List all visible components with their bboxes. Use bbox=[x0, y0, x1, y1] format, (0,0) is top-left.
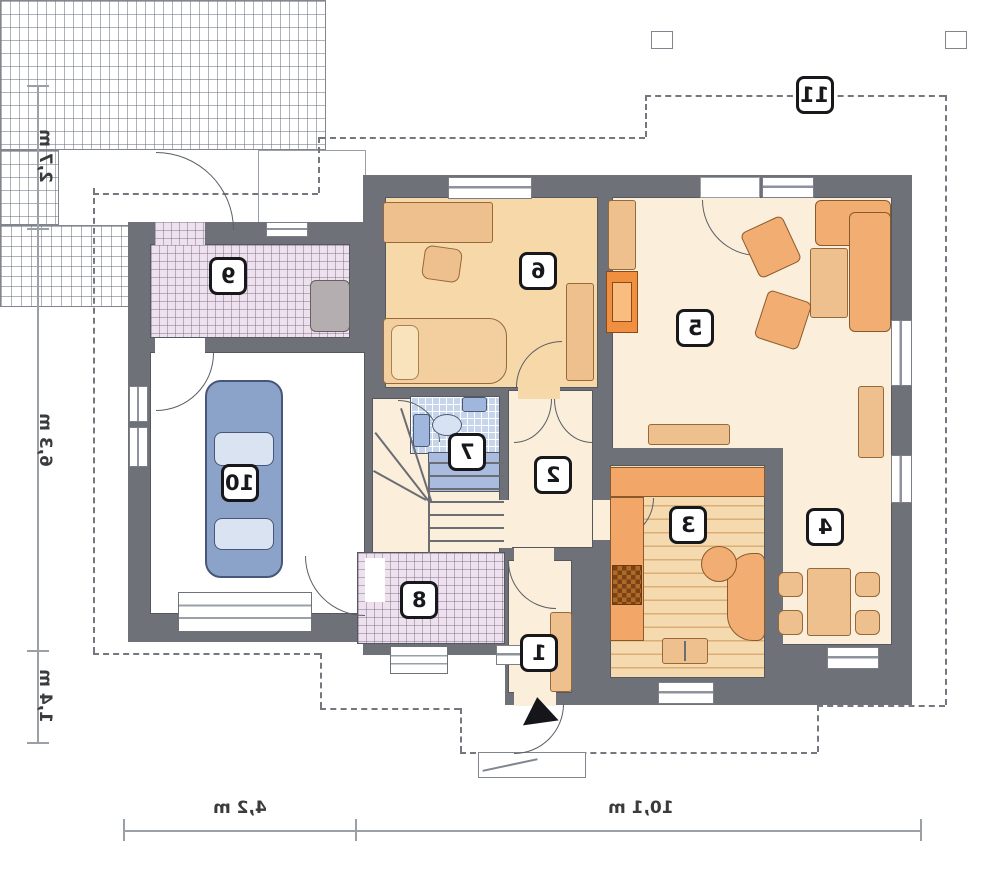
dim-label-bottom-1: 4,2 m bbox=[213, 798, 267, 818]
room-label-8: 8 bbox=[400, 581, 438, 619]
window-kitchen-south bbox=[658, 682, 714, 704]
roof-outline-top-right bbox=[645, 95, 945, 97]
dim-line-bottom bbox=[123, 830, 920, 832]
room-label-6: 6 bbox=[519, 252, 557, 290]
dim-label-left-1: 2,7 m bbox=[35, 129, 55, 183]
dining-chair-4 bbox=[855, 610, 880, 635]
room-label-1: 1 bbox=[520, 634, 558, 672]
coffee-table bbox=[810, 248, 848, 318]
bathroom-shelf bbox=[462, 397, 487, 412]
kitchen-stool-leg bbox=[684, 641, 686, 661]
dining-chair-3 bbox=[778, 610, 803, 635]
dim-tick-bottom-2 bbox=[355, 819, 357, 841]
stairs-tread-3 bbox=[430, 488, 504, 490]
boiler bbox=[310, 280, 350, 332]
terrace-post-left bbox=[651, 31, 673, 49]
door-opening-room9-garage bbox=[155, 338, 205, 353]
terrace-post-right bbox=[945, 31, 967, 49]
room-number-9: 9 bbox=[221, 264, 236, 288]
roof-outline-top-left-step bbox=[318, 137, 320, 193]
cabinet-living-wall bbox=[608, 200, 636, 270]
fireplace-inner bbox=[612, 282, 632, 322]
dim-tick-left-1 bbox=[27, 85, 49, 87]
room-number-6: 6 bbox=[531, 259, 546, 283]
entry-arrow bbox=[519, 695, 558, 726]
roof-outline-step1 bbox=[320, 653, 322, 708]
room-number-4: 4 bbox=[818, 515, 833, 539]
window-room9-north bbox=[266, 222, 308, 237]
room-number-11: 11 bbox=[800, 83, 829, 107]
window-living-north bbox=[762, 177, 814, 198]
window-dining-south bbox=[827, 647, 879, 669]
room-number-1: 1 bbox=[532, 641, 547, 665]
room-number-7: 7 bbox=[460, 440, 475, 464]
terrace-11-floor bbox=[0, 0, 326, 150]
stairs-tread-6 bbox=[430, 527, 504, 529]
terrace-8-steps bbox=[390, 646, 448, 674]
door-opening-terrace11 bbox=[700, 177, 760, 198]
window-garage-west-upper bbox=[129, 386, 148, 422]
room-number-3: 3 bbox=[681, 513, 696, 537]
porch-tiles bbox=[0, 225, 140, 307]
stairs-tread-5 bbox=[430, 514, 504, 516]
room-label-10: 10 bbox=[221, 464, 259, 502]
door-opening-hall-vestibule bbox=[514, 548, 554, 561]
roof-outline-step2 bbox=[320, 708, 460, 710]
stairs-tread-4 bbox=[430, 501, 504, 503]
kitchen-counter-top bbox=[610, 467, 765, 497]
dim-tick-bottom-1 bbox=[123, 819, 125, 841]
room-label-9: 9 bbox=[209, 257, 247, 295]
roof-outline-right bbox=[945, 95, 947, 705]
room-number-8: 8 bbox=[412, 588, 427, 612]
car-rear-window bbox=[214, 518, 274, 550]
roof-outline-terrace-left bbox=[645, 95, 647, 137]
kitchen-sink bbox=[612, 565, 642, 605]
sideboard-east-wall bbox=[858, 386, 884, 458]
window-living-east-lower bbox=[891, 455, 912, 503]
window-room6-north bbox=[448, 177, 532, 199]
corner-sofa-side bbox=[849, 212, 891, 332]
room-label-4: 4 bbox=[806, 508, 844, 546]
desk-chair bbox=[421, 245, 463, 284]
roof-outline-top bbox=[320, 137, 645, 139]
stairs-tread-7 bbox=[430, 540, 504, 542]
door-arc-porch-room9 bbox=[156, 152, 234, 230]
wardrobe-room6 bbox=[566, 283, 594, 381]
door-opening-hall-kitchen bbox=[593, 500, 611, 540]
bed-pillow bbox=[391, 325, 419, 380]
dining-chair-1 bbox=[778, 572, 803, 597]
dim-label-left-2: 6,3 m bbox=[35, 413, 55, 467]
door-opening-room6-hall bbox=[518, 386, 560, 399]
car-windshield bbox=[214, 432, 274, 466]
roof-outline-bottom-left bbox=[93, 653, 320, 655]
window-garage-west-lower bbox=[129, 427, 148, 467]
dim-label-bottom-2: 10,1 m bbox=[608, 798, 674, 818]
garage-door bbox=[178, 592, 312, 632]
room-number-10: 10 bbox=[225, 471, 254, 495]
room-label-5: 5 bbox=[676, 309, 714, 347]
floor-plan: 1 2 3 4 5 6 7 8 9 10 11 2,7 m 6,3 m 1,4 … bbox=[0, 0, 1000, 870]
dim-tick-bottom-3 bbox=[920, 819, 922, 841]
sideboard-above-kitchen bbox=[648, 424, 730, 445]
dim-label-left-3: 1,4 m bbox=[35, 669, 55, 723]
dim-tick-left-2 bbox=[27, 228, 49, 230]
desk bbox=[383, 202, 493, 243]
dining-table bbox=[807, 568, 851, 636]
roof-outline-bottom-right bbox=[817, 705, 945, 707]
kitchen-dining-wall bbox=[765, 448, 783, 678]
kitchen-table-round bbox=[701, 546, 737, 582]
roof-outline-step3 bbox=[460, 708, 462, 752]
stairs-tread-2 bbox=[430, 475, 504, 477]
door-opening-garage-terrace bbox=[365, 558, 385, 602]
porch-landing bbox=[258, 150, 366, 232]
entry-step bbox=[478, 752, 586, 778]
dining-chair-2 bbox=[855, 572, 880, 597]
room-number-2: 2 bbox=[546, 463, 561, 487]
roof-outline-left bbox=[93, 188, 95, 653]
bathroom-toilet bbox=[413, 414, 430, 447]
dim-tick-left-4 bbox=[27, 742, 49, 744]
dim-tick-left-3 bbox=[27, 650, 49, 652]
room-label-3: 3 bbox=[669, 506, 707, 544]
window-living-east-upper bbox=[891, 320, 912, 386]
roof-outline-step4 bbox=[817, 705, 819, 752]
room-label-2: 2 bbox=[534, 456, 572, 494]
room-label-7: 7 bbox=[448, 433, 486, 471]
room-label-11: 11 bbox=[796, 76, 834, 114]
room-number-5: 5 bbox=[688, 316, 703, 340]
